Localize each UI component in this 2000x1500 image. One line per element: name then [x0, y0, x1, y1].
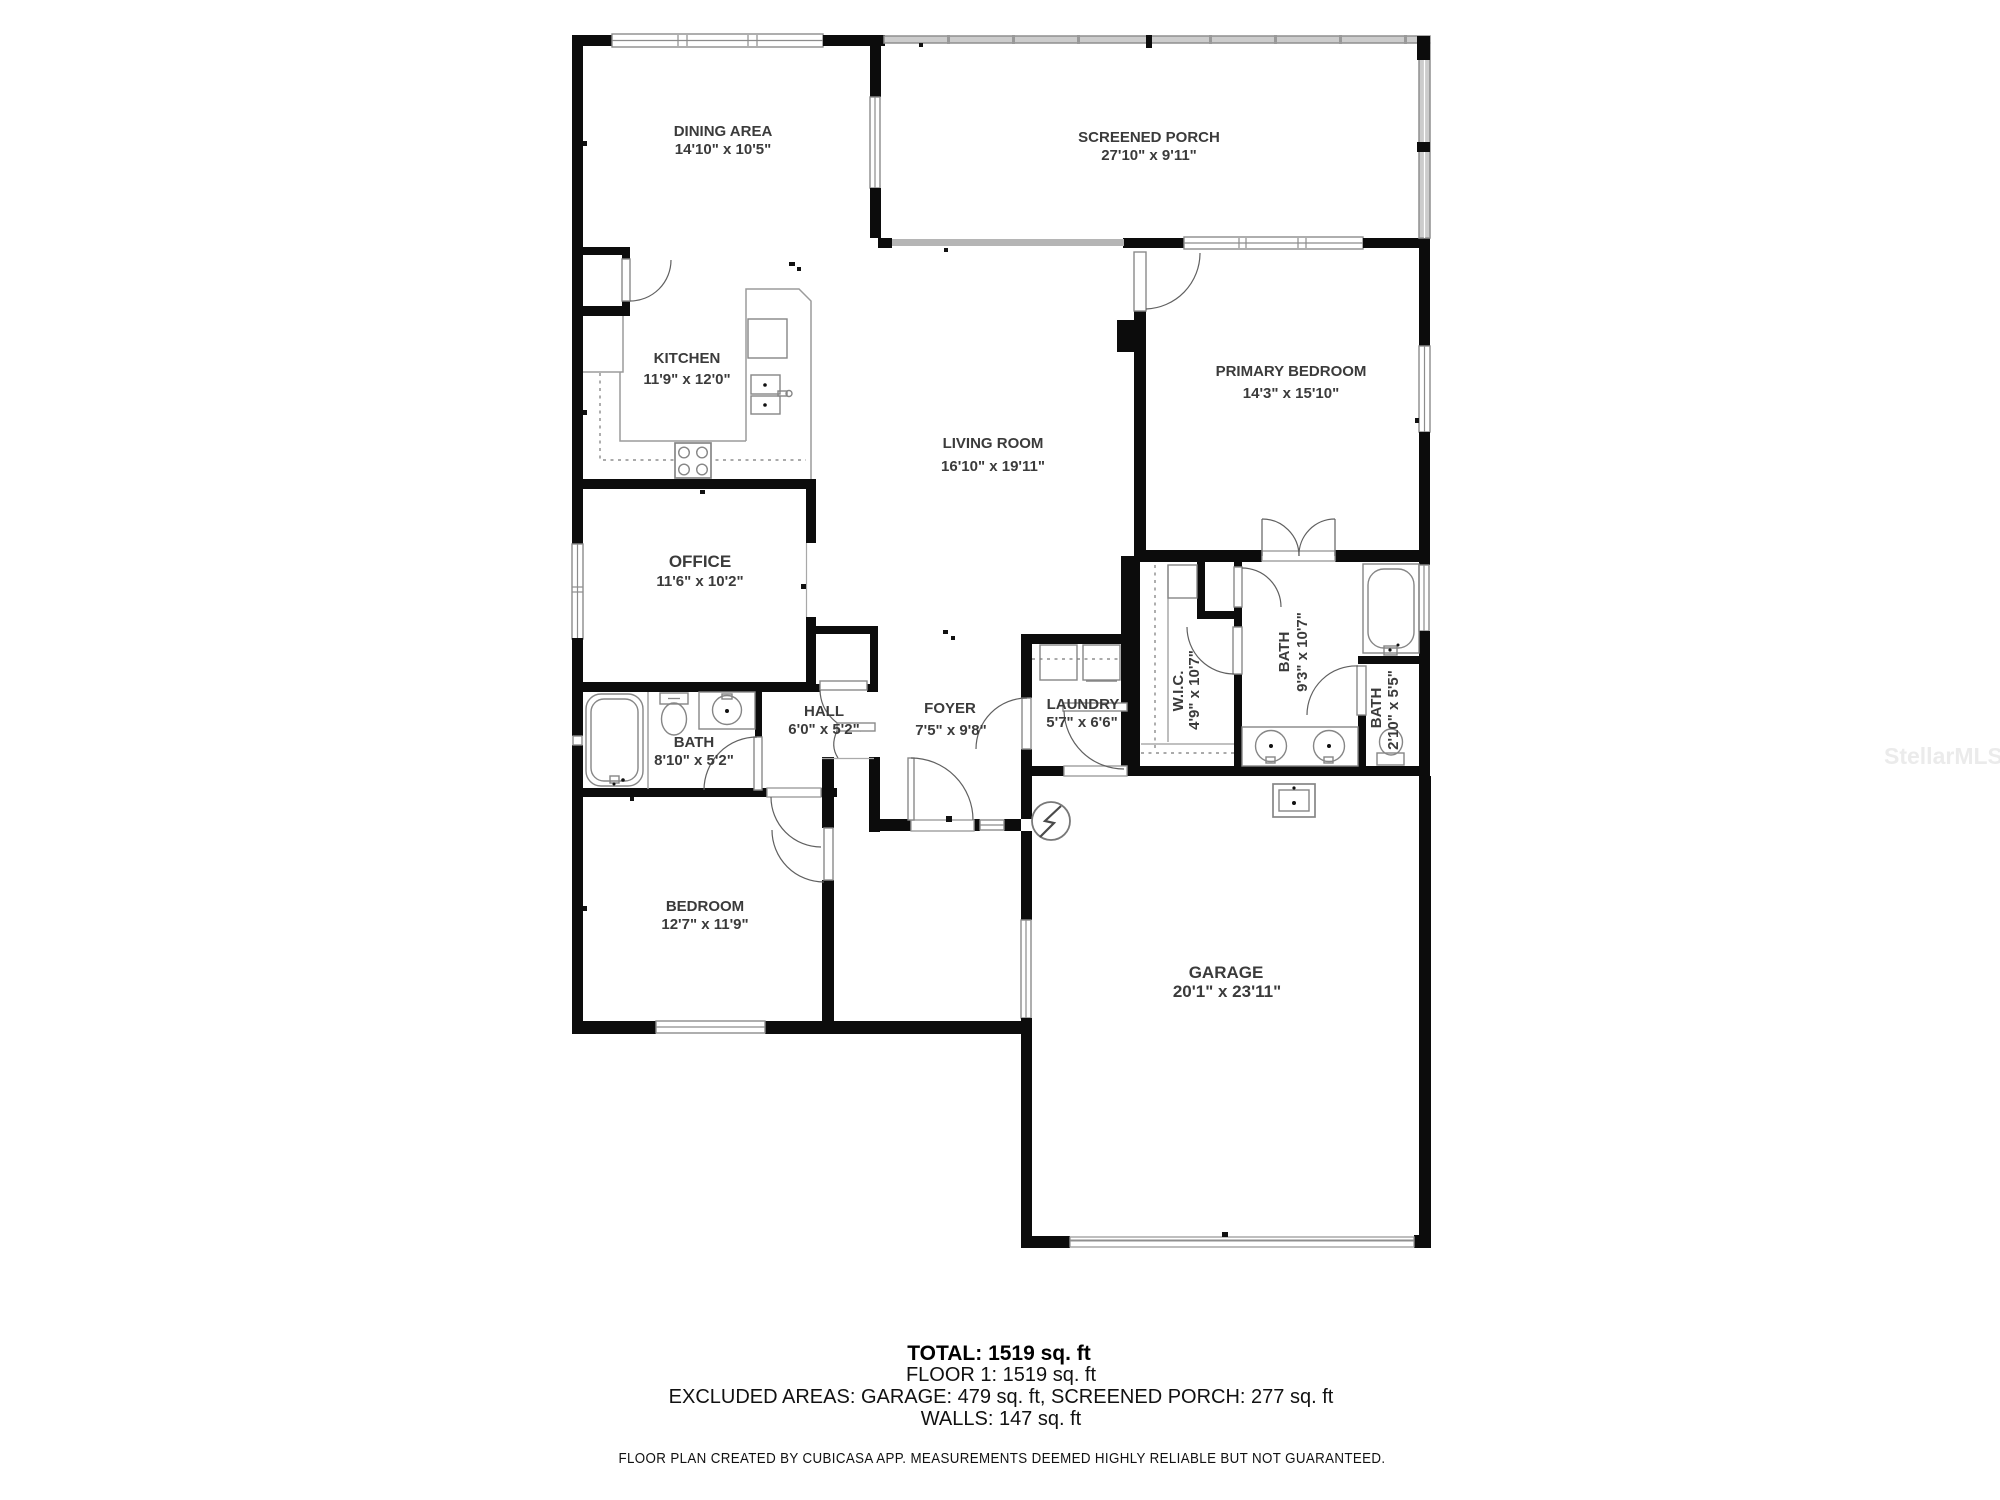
svg-text:TOTAL: 1519 sq. ft: TOTAL: 1519 sq. ft	[907, 1342, 1091, 1365]
svg-text:27'10" x 9'11": 27'10" x 9'11"	[1101, 147, 1197, 164]
svg-text:6'0" x 5'2": 6'0" x 5'2"	[788, 721, 859, 738]
svg-text:LAUNDRY: LAUNDRY	[1047, 696, 1120, 713]
svg-text:WALLS: 147 sq. ft: WALLS: 147 sq. ft	[921, 1408, 1082, 1430]
svg-text:EXCLUDED AREAS: GARAGE: 479 sq: EXCLUDED AREAS: GARAGE: 479 sq. ft, SCRE…	[669, 1386, 1334, 1408]
svg-text:FLOOR 1: 1519 sq. ft: FLOOR 1: 1519 sq. ft	[906, 1364, 1097, 1386]
svg-text:HALL: HALL	[804, 703, 844, 720]
svg-text:OFFICE: OFFICE	[669, 552, 731, 571]
svg-text:FLOOR PLAN CREATED BY CUBICASA: FLOOR PLAN CREATED BY CUBICASA APP. MEAS…	[619, 1451, 1386, 1467]
svg-text:BEDROOM: BEDROOM	[666, 898, 744, 915]
svg-text:StellarMLS: StellarMLS	[1884, 743, 2000, 769]
svg-text:16'10" x 19'11": 16'10" x 19'11"	[941, 458, 1045, 475]
svg-text:4'9" x 10'7": 4'9" x 10'7"	[1186, 650, 1203, 730]
svg-text:12'7" x 11'9": 12'7" x 11'9"	[661, 916, 748, 933]
svg-text:PRIMARY BEDROOM: PRIMARY BEDROOM	[1216, 363, 1367, 380]
svg-text:FOYER: FOYER	[924, 700, 976, 717]
svg-text:BATH: BATH	[1368, 688, 1385, 729]
svg-text:GARAGE: GARAGE	[1189, 963, 1264, 982]
svg-text:5'7" x 6'6": 5'7" x 6'6"	[1046, 714, 1117, 731]
svg-text:BATH: BATH	[674, 734, 715, 751]
svg-text:14'3" x 15'10": 14'3" x 15'10"	[1243, 385, 1339, 402]
svg-text:BATH: BATH	[1276, 632, 1293, 673]
svg-text:20'1" x 23'11": 20'1" x 23'11"	[1173, 982, 1281, 1001]
svg-text:14'10" x 10'5": 14'10" x 10'5"	[675, 141, 771, 158]
svg-text:KITCHEN: KITCHEN	[654, 350, 721, 367]
svg-text:W.I.C.: W.I.C.	[1170, 671, 1187, 712]
svg-text:LIVING ROOM: LIVING ROOM	[943, 435, 1044, 452]
svg-text:11'6" x 10'2": 11'6" x 10'2"	[656, 573, 743, 590]
svg-text:2'10" x 5'5": 2'10" x 5'5"	[1385, 670, 1402, 750]
svg-text:7'5" x 9'8": 7'5" x 9'8"	[915, 722, 986, 739]
svg-text:11'9" x 12'0": 11'9" x 12'0"	[643, 371, 730, 388]
svg-text:8'10" x 5'2": 8'10" x 5'2"	[654, 752, 734, 769]
svg-text:SCREENED PORCH: SCREENED PORCH	[1078, 129, 1220, 146]
svg-text:9'3" x 10'7": 9'3" x 10'7"	[1294, 612, 1311, 692]
svg-text:DINING AREA: DINING AREA	[674, 123, 773, 140]
